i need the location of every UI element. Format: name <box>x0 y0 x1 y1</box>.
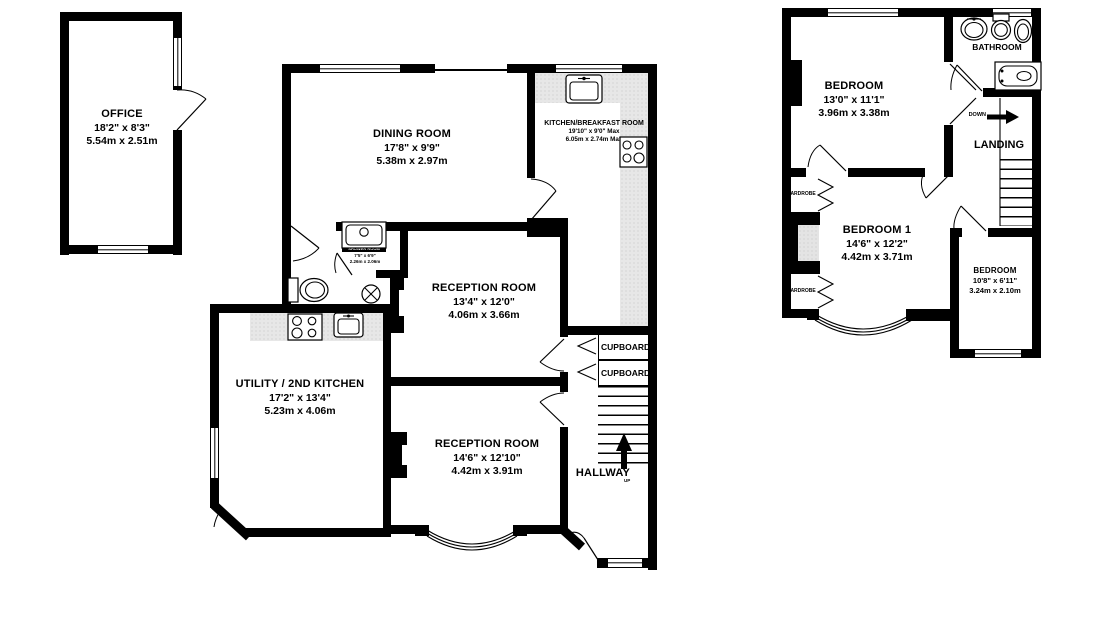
opening-line <box>435 69 507 71</box>
shower-door-arc <box>335 253 337 273</box>
kitchen-label: KITCHEN/BREAKFAST ROOM 19'10" x 9'0" Max… <box>538 119 650 144</box>
bedroom-front-window <box>828 8 898 17</box>
shower-room-label: SHOWER ROOM <box>342 246 386 252</box>
bay-window <box>427 530 517 544</box>
reception2-door <box>540 402 564 425</box>
wall <box>517 525 568 534</box>
utility-door-arc <box>214 509 221 527</box>
toilet-icon <box>288 278 328 302</box>
down-label: DOWN <box>960 112 986 118</box>
chimney-recess <box>798 225 819 261</box>
floor-plan: OFFICE 18'2" x 8'3" 5.54m x 2.51m DINING… <box>0 0 1110 623</box>
reception-room-2-label: RECEPTION ROOM 14'6" x 12'10" 4.42m x 3.… <box>408 438 566 478</box>
wall <box>1032 8 1041 358</box>
wardrobe-door <box>818 276 833 308</box>
bedroom-small-label: BEDROOM 10'8" x 6'11" 3.24m x 2.10m <box>953 266 1037 295</box>
bedroom-front-door-arc <box>808 145 820 167</box>
cupboard-2: CUPBOARD <box>598 360 652 386</box>
utility-label: UTILITY / 2ND KITCHEN 17'2" x 13'4" 5.23… <box>216 378 384 418</box>
wall <box>568 326 648 335</box>
wall <box>950 228 959 358</box>
up-label: UP <box>624 478 630 483</box>
wall <box>527 218 568 237</box>
utility-door <box>221 509 246 534</box>
bathroom-door <box>957 65 982 91</box>
wall <box>560 372 568 392</box>
cupboard-door <box>578 338 596 354</box>
bathroom-window <box>993 8 1031 17</box>
landing-door <box>950 64 976 90</box>
wall <box>404 222 527 231</box>
basin-icon <box>362 285 380 303</box>
bedroom-small-door <box>961 206 986 231</box>
bay-window <box>427 536 517 550</box>
landing-door <box>950 98 976 124</box>
bay-window <box>427 533 517 547</box>
office-window <box>173 38 182 86</box>
bedroom-small-door-arc <box>954 206 961 229</box>
bay-end <box>807 309 819 320</box>
dining-door-arc <box>293 248 319 261</box>
bidet-icon <box>1015 20 1032 43</box>
reception1-door <box>540 339 564 362</box>
utility-window <box>210 428 219 478</box>
landing-stairs <box>1000 140 1032 226</box>
wall <box>791 225 798 261</box>
hallway-label: HALLWAY <box>561 467 645 481</box>
cupboard-door <box>578 364 596 380</box>
toilet-icon <box>992 14 1011 40</box>
office-door-opening <box>173 90 182 130</box>
bedroom1-label: BEDROOM 1 14'6" x 12'2" 4.42m x 3.71m <box>808 224 946 264</box>
wall <box>983 88 1041 97</box>
fireplace-recess <box>399 290 408 316</box>
wall <box>848 168 925 177</box>
bay-end <box>415 525 429 536</box>
kitchen-door <box>531 191 556 220</box>
bay-window <box>815 317 912 332</box>
wall <box>906 309 956 321</box>
wall <box>782 168 806 177</box>
wall <box>210 304 404 313</box>
bay-window <box>815 320 912 335</box>
fireplace-recess <box>402 445 411 465</box>
dining-room-label: DINING ROOM 17'8" x 9'9" 5.38m x 2.97m <box>348 128 476 168</box>
landing-label: LANDING <box>963 139 1035 152</box>
wall <box>648 64 657 570</box>
wall <box>336 222 408 231</box>
down-arrow-icon <box>987 110 1019 124</box>
wall <box>60 12 69 255</box>
wall <box>383 377 560 386</box>
kitchen-window <box>556 64 622 73</box>
wall <box>60 12 182 21</box>
bedroom-small-window <box>975 349 1021 358</box>
office-label: OFFICE 18'2" x 8'3" 5.54m x 2.51m <box>70 108 174 148</box>
reception-room-1-label: RECEPTION ROOM 13'4" x 12'0" 4.06m x 3.6… <box>408 282 560 322</box>
dining-window <box>320 64 400 73</box>
shower-room-dims: 7'5" x 6'9" 2.26m x 2.06m <box>344 253 386 264</box>
reception1-door-arc <box>540 362 564 371</box>
wall <box>782 8 791 318</box>
wardrobe-door <box>818 179 833 211</box>
bathroom-sink-icon <box>961 17 987 40</box>
bay-window <box>815 314 912 329</box>
front-door-arc <box>570 532 584 538</box>
bathroom-label: BATHROOM <box>962 42 1032 52</box>
bedroom-front-door <box>820 145 846 171</box>
wall <box>988 228 1041 237</box>
dining-door <box>291 226 319 248</box>
wall <box>210 478 219 508</box>
wall <box>560 427 568 530</box>
wall <box>210 304 219 428</box>
wardrobe-wall <box>791 261 820 274</box>
cupboard-1: CUPBOARD <box>598 334 652 360</box>
wall <box>527 64 535 178</box>
reception2-door-arc <box>540 393 564 402</box>
wardrobe-wall <box>791 212 820 225</box>
bathroom-door-arc <box>951 65 957 90</box>
wall <box>244 528 391 537</box>
wall <box>944 8 953 62</box>
utility-counter <box>250 313 385 341</box>
wall <box>944 125 953 177</box>
wall <box>282 64 291 313</box>
kitchen-counter-side <box>620 73 648 333</box>
hallway-stairs <box>598 386 648 471</box>
kitchen-door-arc <box>531 179 556 191</box>
office-window <box>98 245 148 254</box>
wall <box>560 237 568 337</box>
bedroom-front-label: BEDROOM 13'0" x 11'1" 3.96m x 3.38m <box>793 80 915 120</box>
hallway-window <box>608 558 642 568</box>
wall <box>383 313 391 537</box>
chimney-breast <box>791 60 802 106</box>
